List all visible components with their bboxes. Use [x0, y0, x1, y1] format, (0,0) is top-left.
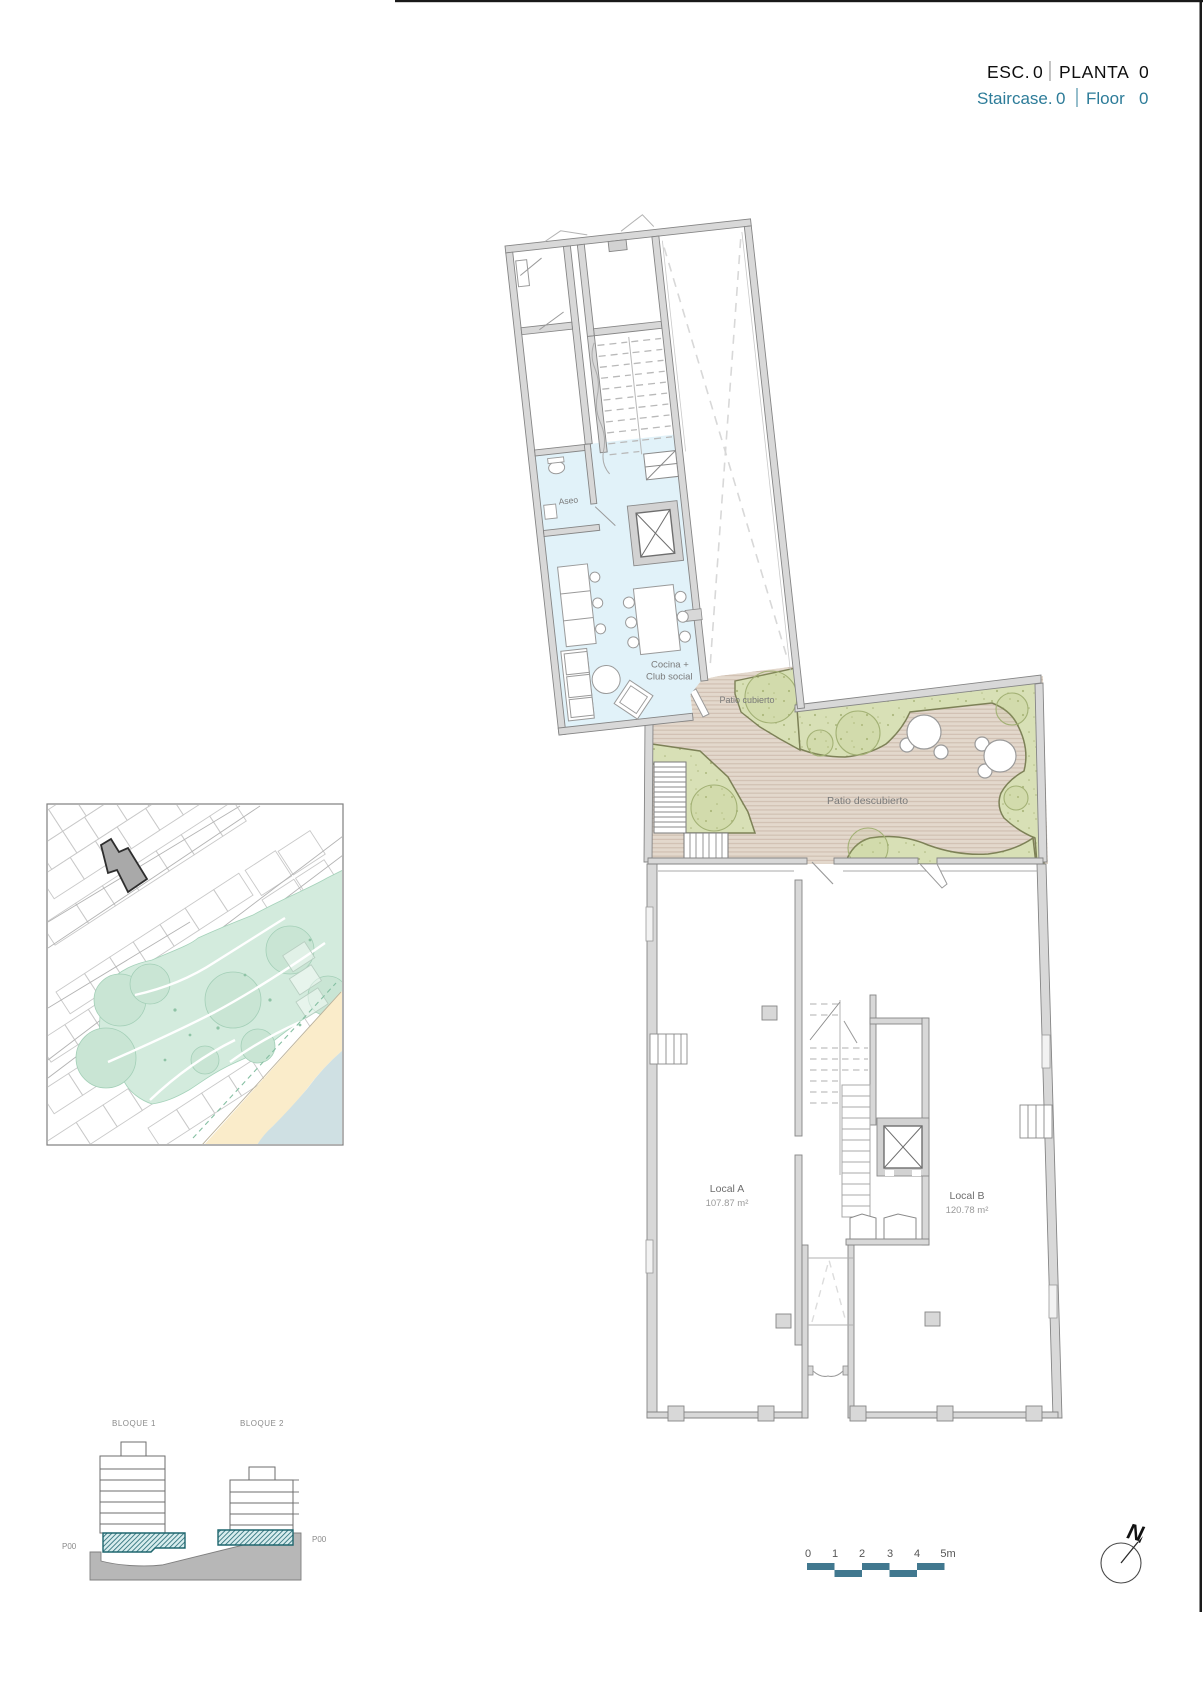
svg-text:Patio descubierto: Patio descubierto: [827, 795, 908, 807]
svg-text:P00: P00: [312, 1535, 327, 1544]
svg-text:120.78 m²: 120.78 m²: [946, 1205, 989, 1216]
svg-text:0: 0: [1056, 89, 1065, 108]
svg-text:5m: 5m: [940, 1548, 955, 1560]
svg-text:3: 3: [887, 1548, 893, 1560]
svg-text:Club social: Club social: [646, 672, 692, 683]
svg-text:0: 0: [1139, 62, 1149, 82]
svg-text:Cocina +: Cocina +: [651, 659, 689, 670]
svg-text:Patio cubierto: Patio cubierto: [719, 695, 774, 705]
svg-text:2: 2: [859, 1548, 865, 1560]
svg-text:P00: P00: [62, 1542, 77, 1551]
svg-text:PLANTA: PLANTA: [1059, 62, 1129, 82]
svg-text:4: 4: [914, 1548, 920, 1560]
svg-text:Local A: Local A: [710, 1183, 744, 1195]
svg-text:Floor: Floor: [1086, 89, 1125, 108]
svg-text:1: 1: [832, 1548, 838, 1560]
svg-text:0: 0: [1139, 89, 1148, 108]
svg-text:BLOQUE 1: BLOQUE 1: [112, 1419, 156, 1428]
svg-text:107.87 m²: 107.87 m²: [706, 1198, 749, 1209]
svg-text:0: 0: [805, 1548, 811, 1560]
svg-text:Local B: Local B: [949, 1190, 984, 1202]
svg-text:ESC.: ESC.: [987, 62, 1030, 82]
svg-text:0: 0: [1033, 62, 1043, 82]
svg-text:Staircase.: Staircase.: [977, 89, 1053, 108]
svg-text:BLOQUE 2: BLOQUE 2: [240, 1419, 284, 1428]
